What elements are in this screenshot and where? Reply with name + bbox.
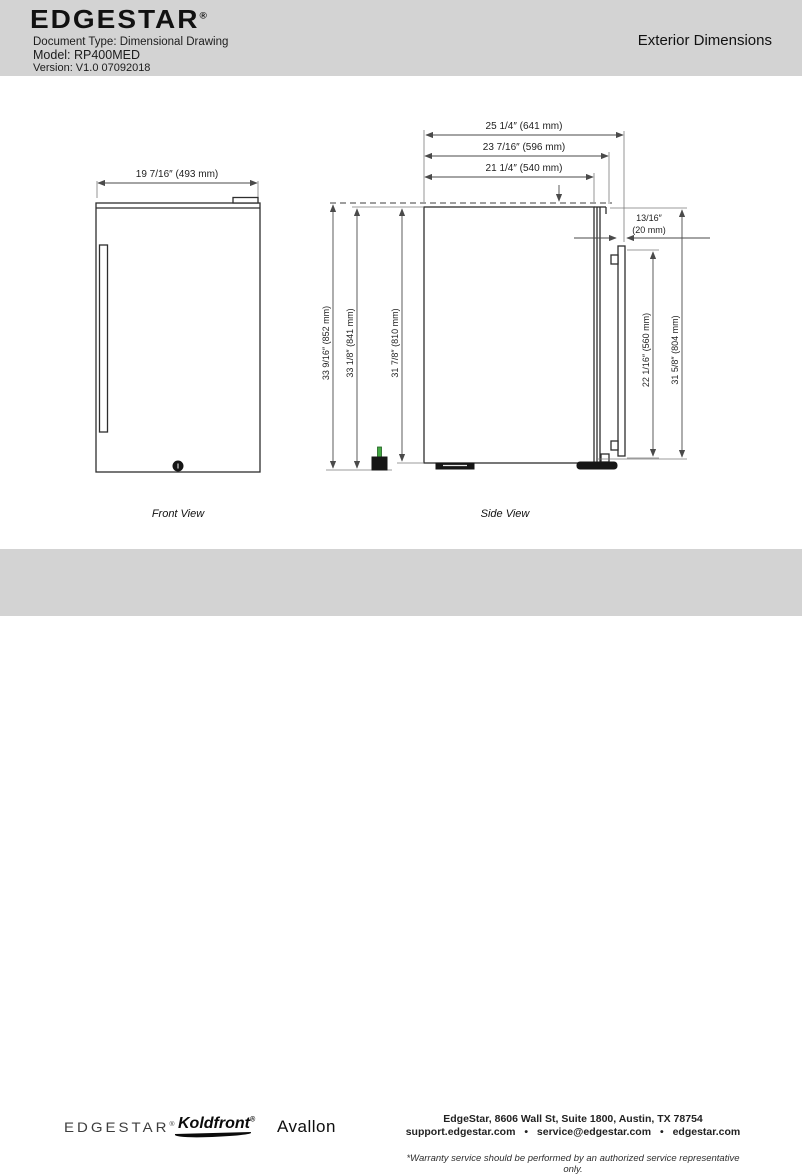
registered-mark: ® xyxy=(250,1117,255,1124)
power-plug-body xyxy=(372,457,387,470)
front-door-handle xyxy=(100,245,108,432)
handle-clearance-label-mm: (20 mm) xyxy=(632,225,666,235)
front-top-hinge-tab xyxy=(233,198,258,204)
depth-cabinet-label: 21 1/4″ (540 mm) xyxy=(486,163,563,174)
dimensional-drawing: 19 7/16″ (493 mm) Front View 25 1/4″ (64… xyxy=(0,76,802,549)
handle-clearance-label-inch: 13/16″ xyxy=(636,213,663,223)
model-number: Model: RP400MED xyxy=(33,48,140,62)
front-view-caption: Front View xyxy=(152,508,205,520)
registered-mark: ® xyxy=(169,1121,174,1128)
footer-contact-block: EdgeStar, 8606 Wall St, Suite 1800, Aust… xyxy=(400,1113,746,1175)
side-cabinet-outline xyxy=(424,207,594,463)
registered-mark: ® xyxy=(200,11,207,21)
rear-roller-foot xyxy=(577,462,617,469)
power-plug-prong xyxy=(378,447,382,458)
height-total-label: 33 9/16″ (852 mm) xyxy=(321,306,331,380)
handle-bracket-bottom xyxy=(611,441,618,450)
height-cabinet-label: 31 7/8″ (810 mm) xyxy=(390,308,400,377)
company-address: EdgeStar, 8606 Wall St, Suite 1800, Aust… xyxy=(400,1113,746,1126)
door-height-label: 31 5/8″ (804 mm) xyxy=(670,315,680,384)
edgestar-logo: EDGESTAR® xyxy=(30,5,207,34)
warranty-note: *Warranty service should be performed by… xyxy=(400,1153,746,1175)
document-version: Version: V1.0 07092018 xyxy=(33,62,150,74)
depth-with-handle-label: 25 1/4″ (641 mm) xyxy=(486,121,563,132)
depth-with-door-label: 23 7/16″ (596 mm) xyxy=(483,142,565,153)
height-with-hinge-label: 33 1/8″ (841 mm) xyxy=(345,308,355,377)
front-cabinet-outline xyxy=(96,203,260,472)
footer-koldfront-text: Koldfront xyxy=(178,1115,250,1132)
document-header: EDGESTAR® Document Type: Dimensional Dra… xyxy=(0,0,802,76)
footer-edgestar-text: EDGESTAR xyxy=(64,1119,169,1135)
side-view-caption: Side View xyxy=(481,508,531,520)
side-handle-bar xyxy=(618,246,625,456)
footer-koldfront-logo: Koldfront® xyxy=(178,1115,255,1133)
handle-length-label: 22 1/16″ (560 mm) xyxy=(641,313,651,387)
edgestar-logo-text: EDGESTAR xyxy=(30,5,200,34)
document-type: Document Type: Dimensional Drawing xyxy=(33,36,228,48)
door-bottom-tab xyxy=(601,454,609,462)
page-title: Exterior Dimensions xyxy=(638,32,772,49)
front-view: 19 7/16″ (493 mm) Front View xyxy=(96,169,260,520)
koldfront-underline-swoosh xyxy=(175,1132,251,1137)
side-view: 25 1/4″ (641 mm) 23 7/16″ (596 mm) 21 1/… xyxy=(321,121,710,520)
handle-bracket-top xyxy=(611,255,618,264)
document-footer: EDGESTAR® Koldfront® Avallon EdgeStar, 8… xyxy=(0,549,802,616)
front-width-dimension-label: 19 7/16″ (493 mm) xyxy=(136,169,218,180)
footer-edgestar-logo: EDGESTAR® xyxy=(64,1119,175,1135)
footer-avallon-logo: Avallon xyxy=(277,1117,336,1137)
company-contacts: support.edgestar.com • service@edgestar.… xyxy=(400,1126,746,1139)
